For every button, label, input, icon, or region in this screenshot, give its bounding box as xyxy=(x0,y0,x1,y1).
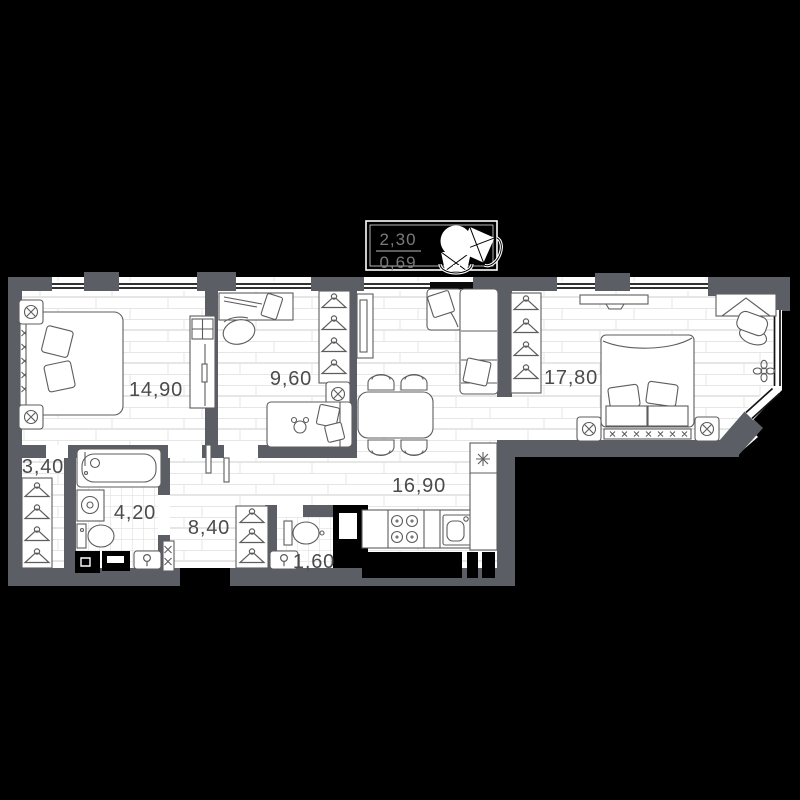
washing-machine-icon xyxy=(77,490,104,521)
room-label-wc: 1,60 xyxy=(293,551,335,573)
desk xyxy=(219,293,293,320)
room-label-bedroom-2: 17,80 xyxy=(544,367,598,389)
shaft xyxy=(362,552,462,578)
fridge xyxy=(470,443,497,550)
pillow-icon xyxy=(646,381,679,407)
radiator-icon xyxy=(19,405,43,429)
double-bed xyxy=(26,312,123,415)
balcony-table-icon xyxy=(441,226,472,257)
bed-runner xyxy=(604,429,691,439)
window xyxy=(236,281,311,291)
tv-stand xyxy=(357,294,373,358)
chair-icon xyxy=(368,375,394,391)
pillow-icon xyxy=(44,360,76,392)
balcony-value-bottom: 0,69 xyxy=(379,253,416,272)
room-label-kitchen-living: 16,90 xyxy=(392,475,446,497)
room-label-kids-room: 9,60 xyxy=(270,368,312,390)
shaft xyxy=(102,551,130,571)
room-label-closet: 3,40 xyxy=(22,456,64,478)
radiator-icon xyxy=(19,300,43,324)
window xyxy=(364,281,430,291)
door-leaf xyxy=(224,458,229,482)
door-leaf xyxy=(206,445,211,473)
bathtub-icon xyxy=(77,449,161,487)
balcony-value-top: 2,30 xyxy=(379,230,416,249)
window xyxy=(52,281,84,291)
chair-icon xyxy=(401,440,427,456)
shaft xyxy=(467,552,478,578)
pillow-icon xyxy=(324,422,345,443)
wardrobe xyxy=(190,316,215,408)
balcony-door xyxy=(430,282,473,289)
nightstand-radiator-icon xyxy=(577,417,601,441)
shaft xyxy=(482,552,495,578)
wardrobe xyxy=(236,506,268,568)
window xyxy=(119,281,197,291)
dining-table xyxy=(358,392,433,438)
room-label-bathroom: 4,20 xyxy=(114,502,156,524)
apartment-floor-plan: 2,30 0,69 14,90 9,60 17,80 3,40 4,20 8,4… xyxy=(0,0,800,800)
pillow-icon xyxy=(41,325,74,358)
single-bed xyxy=(267,402,352,447)
snowflake-icon xyxy=(476,452,490,466)
nightstand-radiator-icon xyxy=(695,417,719,441)
bathroom-sink-icon xyxy=(134,551,161,569)
chair-icon xyxy=(368,440,394,456)
shaft xyxy=(75,551,100,573)
balcony: 2,30 0,69 xyxy=(363,218,506,273)
double-bed xyxy=(601,335,694,439)
entrance-door xyxy=(180,568,230,586)
wardrobe xyxy=(319,291,350,383)
chair-icon xyxy=(401,375,427,391)
pillow-icon xyxy=(463,358,491,386)
room-label-bedroom-1: 14,90 xyxy=(129,379,183,401)
window xyxy=(630,281,708,291)
wardrobe xyxy=(511,293,541,393)
room-label-hallway: 8,40 xyxy=(188,517,230,539)
window xyxy=(557,281,595,291)
door-leaf xyxy=(163,541,174,571)
toilet-icon xyxy=(77,524,114,548)
